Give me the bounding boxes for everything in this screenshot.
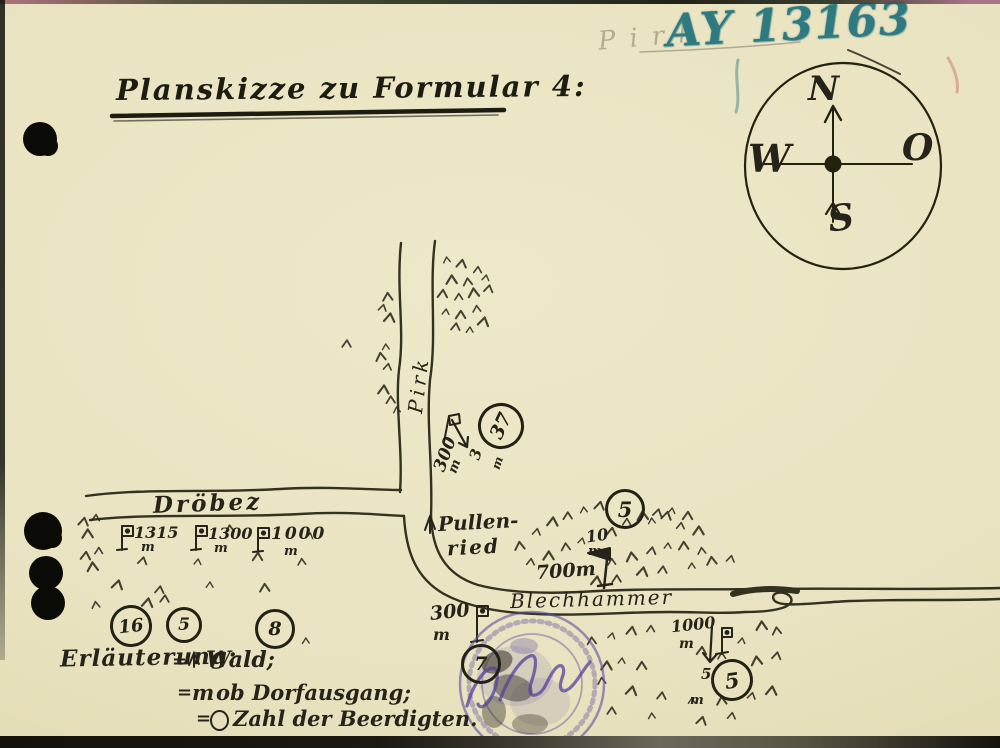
- compass-north-label: N: [808, 72, 839, 106]
- legend-item-distance-equals: =: [177, 684, 192, 702]
- hole-punches: [23, 122, 65, 620]
- burial-count-8: 8: [255, 609, 295, 649]
- circle-mark-icon: [210, 710, 229, 731]
- scan-edge-bottom: [0, 736, 1000, 748]
- burial-count-5-left: 5: [166, 607, 202, 643]
- flag-marker-icon-east: [716, 628, 732, 654]
- archive-number: AY 13163: [665, 0, 912, 53]
- distance-5-unit: m: [690, 694, 704, 707]
- legend-item-distance-symbol: m: [192, 682, 214, 703]
- distance-700-value: 700: [535, 559, 576, 584]
- wald-mark-icon: [186, 650, 203, 668]
- distance-1315-unit: m: [141, 541, 155, 554]
- compass-south-label: S: [826, 198, 857, 237]
- distance-1300-value: 1300: [208, 526, 253, 542]
- village-label-line1: Pullen-: [438, 510, 519, 534]
- road-label-droebez: Dröbez: [153, 490, 263, 517]
- distance-1315-value: 1315: [134, 525, 179, 541]
- document-title: Planskizze zu Formular 4:: [116, 72, 587, 105]
- legend-item-count-equals: =: [196, 710, 211, 728]
- legend-item-count-label: Zahl der Beerdigten.: [233, 708, 477, 729]
- flag-marker-icon-south: [471, 606, 488, 642]
- distance-10-unit: m: [588, 545, 602, 558]
- flag-marker-icon-1300: [191, 526, 207, 550]
- distance-300-south-value: 300: [429, 601, 470, 624]
- village-label-line2: ried: [447, 536, 501, 559]
- distance-1000-east-value: 1000: [670, 615, 716, 636]
- distance-10-value: 10: [585, 527, 609, 546]
- flag-marker-icon-1315: [117, 526, 133, 550]
- distance-1000-east-unit: m: [679, 637, 694, 651]
- scanned-map-document: Planskizze zu Formular 4: Pirk AY 13163 …: [0, 0, 1000, 748]
- scan-edge-left: [0, 0, 5, 660]
- road-label-blechhammer: Blechhammer: [510, 587, 674, 611]
- distance-1000-west-value: 1000: [271, 526, 326, 543]
- compass-west-label: W: [748, 140, 791, 178]
- distance-300-south-unit: m: [433, 627, 450, 643]
- burial-count-7: 7: [461, 644, 501, 684]
- legend-item-wald-label: Wald;: [206, 649, 275, 671]
- scan-edge-top: [0, 0, 1000, 4]
- legend-item-wald-equals: =: [172, 653, 187, 671]
- burial-count-5-upper: 5: [605, 489, 645, 529]
- road-label-pirk: Pirk: [405, 355, 432, 415]
- distance-700-unit: m: [575, 558, 597, 581]
- title-underline: [112, 110, 504, 121]
- distance-5-value: 5: [701, 667, 711, 682]
- map-drawing: [0, 0, 1000, 748]
- compass-east-label: O: [902, 130, 933, 166]
- distance-1300-unit: m: [214, 542, 228, 555]
- legend-item-distance-label: ob Dorfausgang;: [216, 682, 411, 703]
- distance-700: 700m: [535, 560, 596, 583]
- flag-marker-icon-1000-west: [253, 528, 269, 552]
- distance-1000-west-unit: m: [284, 545, 298, 558]
